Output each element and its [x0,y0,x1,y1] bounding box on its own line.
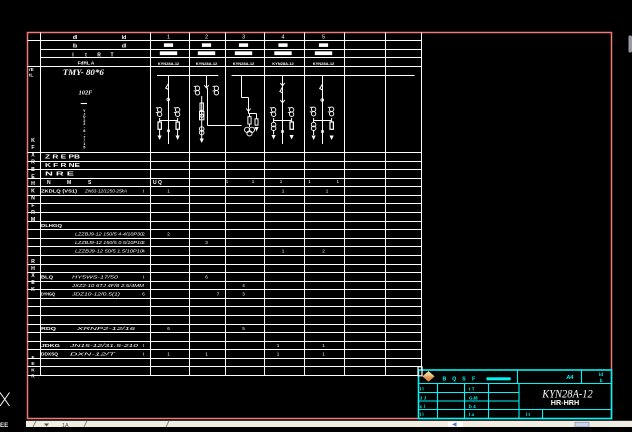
svg-text:Q: Q [452,376,456,382]
svg-text:KYN28A-12: KYN28A-12 [196,61,218,66]
svg-text:KYN28A-12: KYN28A-12 [233,61,255,66]
svg-text:B: B [31,167,35,173]
svg-text:KYN28A-12: KYN28A-12 [272,61,294,66]
svg-text:2: 2 [205,35,208,41]
svg-text:dl: dl [122,44,127,50]
svg-text:FdRL A: FdRL A [78,61,95,67]
svg-text:1: 1 [167,352,170,357]
svg-text:E: E [31,280,35,286]
svg-text:ZKDLQ (VS1): ZKDLQ (VS1) [41,189,78,194]
svg-text:HY5WS-17/50: HY5WS-17/50 [72,275,119,280]
svg-text:2: 2 [167,232,170,237]
svg-text:1A: 1A [62,423,69,427]
svg-text:KYN28A-12: KYN28A-12 [313,61,335,66]
svg-text:4: 4 [242,283,245,288]
svg-text:N R E: N R E [45,172,75,178]
svg-text:b 4: b 4 [469,404,476,409]
svg-text:1: 1 [277,352,280,357]
svg-text:T: T [110,52,113,58]
svg-text:H: H [31,266,35,272]
svg-text:1: 1 [277,343,280,348]
svg-text:K: K [31,188,35,194]
svg-text:H: H [31,181,35,187]
svg-text:R: R [31,259,35,265]
svg-text:K: K [31,287,35,293]
svg-text:JDZ10-12/0.5(1): JDZ10-12/0.5(1) [70,292,120,297]
svg-text:F: F [31,145,34,151]
svg-text:U Q: U Q [153,180,162,186]
svg-text:ld: ld [599,372,603,377]
svg-text:1: 1 [167,189,170,194]
svg-text:TMY- 80*6: TMY- 80*6 [63,68,104,77]
svg-text:b: b [600,378,603,383]
svg-text:l a: l a [469,412,475,417]
svg-text:B: B [443,376,447,382]
svg-text:A4: A4 [565,375,574,381]
svg-text:lb: lb [73,44,78,50]
svg-text:M: M [31,217,35,223]
svg-text:LZZBJ9-12 150/5 0.5/10P10: LZZBJ9-12 150/5 0.5/10P10 [75,240,144,245]
svg-text:RDQ: RDQ [41,326,57,331]
svg-text:JN15-12/31.5-210: JN15-12/31.5-210 [68,343,139,348]
svg-text:4: 4 [281,35,284,41]
svg-text:JDKG: JDKG [41,343,61,348]
svg-text:F: F [31,203,34,209]
svg-text:LZZBJ9-12 50/5 1.5/10P10: LZZBJ9-12 50/5 1.5/10P10 [75,249,144,254]
svg-text:R: R [97,52,101,58]
svg-text:5: 5 [322,35,325,41]
svg-text:l l: l l [420,412,424,417]
svg-text:M: M [67,180,71,186]
svg-text:K: K [31,138,35,144]
svg-text:ZN63-12/1250-25kA: ZN63-12/1250-25kA [84,189,127,194]
svg-text:N: N [47,180,51,186]
svg-text:DYHGQ: DYHGQ [41,292,55,297]
svg-text:1: 1 [282,249,285,254]
svg-text:DLHGQ: DLHGQ [41,223,63,228]
svg-text:R: R [31,160,35,166]
svg-text:BLQ: BLQ [41,275,54,280]
svg-text:1: 1 [205,352,208,357]
svg-text:1: 1 [322,343,325,348]
svg-text:5: 5 [83,145,85,149]
svg-text:F: F [32,355,35,361]
svg-text:GJ8: GJ8 [469,395,478,400]
svg-text:X: X [31,152,35,158]
svg-text:t T: t T [469,386,475,391]
svg-text:102F: 102F [79,91,93,97]
svg-text:ld: ld [122,35,127,41]
svg-text:1: 1 [167,35,170,41]
svg-text:l t: l t [526,412,531,417]
svg-text:Z R E PB: Z R E PB [45,155,81,161]
svg-text:KYN28A-12: KYN28A-12 [158,61,180,66]
svg-text:7: 7 [217,292,220,297]
svg-text:1: 1 [326,189,329,194]
svg-text:R: R [31,374,35,380]
svg-text:E: E [31,174,35,180]
svg-text:1: 1 [282,189,285,194]
svg-text:XRNP2-12/16: XRNP2-12/16 [75,326,136,331]
svg-text:DXN-12/T: DXN-12/T [70,352,116,357]
svg-text:S: S [462,376,466,382]
svg-text:dl: dl [73,35,78,41]
svg-text:c l: c l [420,404,425,409]
svg-text:HR-HRH: HR-HRH [551,398,580,407]
svg-text:X: X [31,273,35,279]
svg-text:1: 1 [322,352,325,357]
svg-text:K F R NE: K F R NE [45,163,81,169]
svg-text:5: 5 [242,326,245,331]
svg-text:3: 3 [242,35,245,41]
svg-text:EE: EE [0,422,8,427]
svg-text:LZZBJ9-12 150/5 4-4/10P30: LZZBJ9-12 150/5 4-4/10P30 [75,232,144,237]
svg-text:tL: tL [29,72,33,77]
svg-text:6: 6 [205,275,208,280]
svg-text:2: 2 [322,249,325,254]
svg-text:J J: J J [420,395,427,400]
svg-text:6: 6 [167,326,170,331]
svg-text:N: N [31,196,35,202]
svg-text:l l: l l [420,386,424,391]
svg-text:R: R [31,210,35,216]
svg-text:JXZ2-10 6TJ 4F/8 2.5/4MM: JXZ2-10 6TJ 4F/8 2.5/4MM [71,283,145,288]
svg-text:3: 3 [242,292,245,297]
svg-text:3: 3 [205,240,208,245]
svg-text:DDXSQ: DDXSQ [41,352,58,357]
svg-text:K: K [31,367,35,373]
